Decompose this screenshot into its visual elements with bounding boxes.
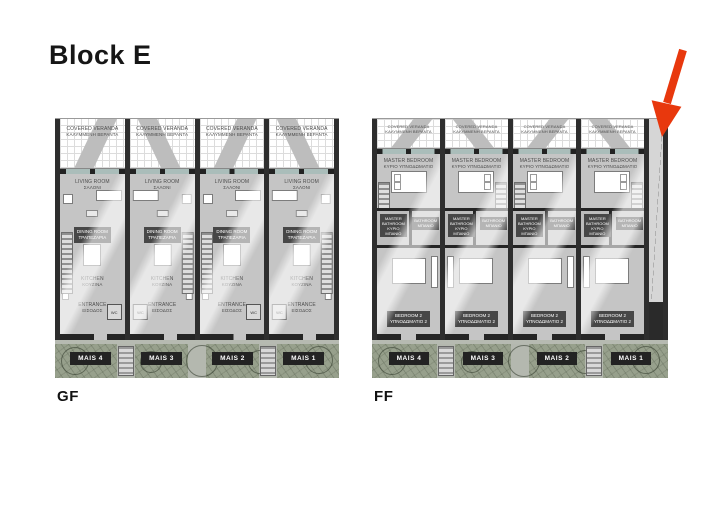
wc-room: WC [246,304,261,320]
sink-icon [561,223,567,229]
staircase [201,232,213,294]
ff-unit: COVERED VERANDA ΚΑΛΥΜΜΕΝΗ ΒΕΡΑΝΤΑ [377,119,440,340]
dining-table [293,244,311,266]
ff-unit: COVERED VERANDA ΚΑΛΥΜΜΕΝΗ ΒΕΡΑΝΤΑ [581,119,644,340]
ff-veranda: COVERED VERANDA ΚΑΛΥΜΜΕΝΗ ΒΕΡΑΝΤΑ [513,119,576,149]
toilet-icon [384,223,391,230]
gf-veranda: COVERED VERANDA ΚΑΛΥΜΜΕΝΗ ΒΕΡΑΝΤΑ [200,119,265,169]
bathroom-zone [445,208,508,248]
staircase [61,232,73,294]
wardrobe [567,256,574,288]
bathroom-zone [377,208,440,248]
master-bed [595,171,631,193]
ff-floor: MASTER BEDROOM ΚΥΡΙΟ ΥΠΝΟΔΩΜΑΤΙΟ MASTER … [377,154,440,334]
furniture-layer: WC [130,174,195,334]
ff-veranda: COVERED VERANDA ΚΑΛΥΜΜΕΝΗ ΒΕΡΑΝΤΑ [445,119,508,149]
toilet-icon [630,223,637,230]
side-terrace [649,119,663,340]
sofa [272,190,298,201]
room-label-veranda: COVERED VERANDA ΚΑΛΥΜΜΕΝΗ ΒΕΡΑΝΤΑ [130,126,195,138]
gf-veranda: COVERED VERANDA ΚΑΛΥΜΜΕΝΗ ΒΕΡΑΝΤΑ [130,119,195,169]
gf-building: COVERED VERANDA ΚΑΛΥΜΜΕΝΗ ΒΕΡΑΝΤΑ [55,118,339,340]
page-title: Block E [49,40,152,71]
coffee-table [296,210,308,217]
unit-badge: MAIS 3 [141,352,182,365]
gf-unit-badges: MAIS 4 MAIS 3 MAIS 2 MAIS 1 [55,344,339,378]
master-bed [527,171,563,193]
gf-veranda: COVERED VERANDA ΚΑΛΥΜΜΕΝΗ ΒΕΡΑΝΤΑ [60,119,125,169]
furniture-layer [445,154,508,334]
ff-unit: COVERED VERANDA ΚΑΛΥΜΜΕΝΗ ΒΕΡΑΝΤΑ [513,119,576,340]
ff-floor: MASTER BEDROOM ΚΥΡΙΟ ΥΠΝΟΔΩΜΑΤΙΟ MASTER … [445,154,508,334]
wardrobe [583,256,590,288]
annotation-arrow [643,45,691,145]
gf-landscape: MAIS 4 MAIS 3 MAIS 2 MAIS 1 [55,340,339,378]
furniture-layer: WC [200,174,265,334]
ff-floor: MASTER BEDROOM ΚΥΡΙΟ ΥΠΝΟΔΩΜΑΤΙΟ MASTER … [581,154,644,334]
wc-room: WC [272,304,287,320]
room-label-veranda: COVERED VERANDA ΚΑΛΥΜΜΕΝΗ ΒΕΡΑΝΤΑ [445,124,508,134]
bedroom2-bed [460,258,494,284]
bedroom2-bed [596,258,630,284]
armchair [63,194,73,204]
gf-floor: WC LIVING ROOM ΣΑΛΟΝΙ DINING ROOMΤΡΑΠΕΖΑ… [60,174,125,334]
sink-icon [590,223,596,229]
bedroom2-bed [392,258,426,284]
gf-floor: WC LIVING ROOM ΣΑΛΟΝΙ DINING ROOMΤΡΑΠΕΖΑ… [269,174,334,334]
furniture-layer [581,154,644,334]
room-label-veranda: COVERED VERANDA ΚΑΛΥΜΜΕΝΗ ΒΕΡΑΝΤΑ [377,124,440,134]
gf-unit: COVERED VERANDA ΚΑΛΥΜΜΕΝΗ ΒΕΡΑΝΤΑ [200,119,265,340]
staircase [321,232,333,294]
bathroom-wall [610,211,613,245]
room-label-veranda: COVERED VERANDA ΚΑΛΥΜΜΕΝΗ ΒΕΡΑΝΤΑ [60,126,125,138]
unit-badge: MAIS 1 [283,352,324,365]
arrow-head [652,100,682,137]
ff-building: COVERED VERANDA ΚΑΛΥΜΜΕΝΗ ΒΕΡΑΝΤΑ [372,118,668,340]
unit-badge: MAIS 3 [463,352,504,365]
wc-room: WC [133,304,148,320]
coffee-table [226,210,238,217]
ff-floor: MASTER BEDROOM ΚΥΡΙΟ ΥΠΝΟΔΩΜΑΤΙΟ MASTER … [513,154,576,334]
toilet-icon [494,223,501,230]
gf-unit: COVERED VERANDA ΚΑΛΥΜΜΕΝΗ ΒΕΡΑΝΤΑ [130,119,195,340]
bathroom-wall [409,211,412,245]
unit-badge: MAIS 2 [537,352,578,365]
gf-floor: WC LIVING ROOM ΣΑΛΟΝΙ DINING ROOMΤΡΑΠΕΖΑ… [130,174,195,334]
sofa [235,190,261,201]
page: Block E COVERED VERANDA ΚΑΛΥΜΜΕΝΗ ΒΕΡΑΝΤ… [0,0,705,508]
floor-plan-ff: COVERED VERANDA ΚΑΛΥΜΜΕΝΗ ΒΕΡΑΝΤΑ [372,118,668,405]
furniture-layer: WC [60,174,125,334]
gf-unit: COVERED VERANDA ΚΑΛΥΜΜΕΝΗ ΒΕΡΑΝΤΑ [269,119,334,340]
bathroom-wall [545,211,548,245]
unit-badge: MAIS 1 [611,352,652,365]
furniture-layer: WC [269,174,334,334]
furniture-layer [513,154,576,334]
gf-unit: COVERED VERANDA ΚΑΛΥΜΜΕΝΗ ΒΕΡΑΝΤΑ [60,119,125,340]
sofa [133,190,159,201]
dining-table [223,244,241,266]
arrow-shaft [667,50,683,103]
room-label-veranda: COVERED VERANDA ΚΑΛΥΜΜΕΝΗ ΒΕΡΑΝΤΑ [513,124,576,134]
plan-caption-ff: FF [374,388,668,405]
unit-badge: MAIS 2 [212,352,253,365]
armchair [321,194,331,204]
bathroom-zone [581,208,644,248]
unit-badge: MAIS 4 [389,352,430,365]
sofa [96,190,122,201]
dining-table [83,244,101,266]
ff-unit: COVERED VERANDA ΚΑΛΥΜΜΕΝΗ ΒΕΡΑΝΤΑ [445,119,508,340]
armchair [182,194,192,204]
bathroom-zone [513,208,576,248]
coffee-table [157,210,169,217]
furniture-layer [377,154,440,334]
ff-landscape: MAIS 4 MAIS 3 MAIS 2 MAIS 1 [372,340,668,378]
staircase [182,232,194,294]
master-bed [391,171,427,193]
room-label-veranda: COVERED VERANDA ΚΑΛΥΜΜΕΝΗ ΒΕΡΑΝΤΑ [269,126,334,138]
ff-veranda: COVERED VERANDA ΚΑΛΥΜΜΕΝΗ ΒΕΡΑΝΤΑ [581,119,644,149]
gf-veranda: COVERED VERANDA ΚΑΛΥΜΜΕΝΗ ΒΕΡΑΝΤΑ [269,119,334,169]
room-label-veranda: COVERED VERANDA ΚΑΛΥΜΜΕΝΗ ΒΕΡΑΝΤΑ [200,126,265,138]
sink-icon [454,223,460,229]
gf-floor: WC LIVING ROOM ΣΑΛΟΝΙ DINING ROOMΤΡΑΠΕΖΑ… [200,174,265,334]
ff-unit-badges: MAIS 4 MAIS 3 MAIS 2 MAIS 1 [372,344,668,378]
coffee-table [86,210,98,217]
bathroom-wall [474,211,477,245]
plan-caption-gf: GF [57,388,339,405]
wc-room: WC [107,304,122,320]
sink-icon [425,223,431,229]
floor-plan-gf: COVERED VERANDA ΚΑΛΥΜΜΕΝΗ ΒΕΡΑΝΤΑ [55,118,339,405]
wardrobe [447,256,454,288]
wardrobe [431,256,438,288]
room-label-veranda: COVERED VERANDA ΚΑΛΥΜΜΕΝΗ ΒΕΡΑΝΤΑ [581,124,644,134]
armchair [203,194,213,204]
dining-table [153,244,171,266]
unit-badge: MAIS 4 [70,352,111,365]
toilet-icon [520,223,527,230]
master-bed [459,171,495,193]
bedroom2-bed [528,258,562,284]
ff-veranda: COVERED VERANDA ΚΑΛΥΜΜΕΝΗ ΒΕΡΑΝΤΑ [377,119,440,149]
